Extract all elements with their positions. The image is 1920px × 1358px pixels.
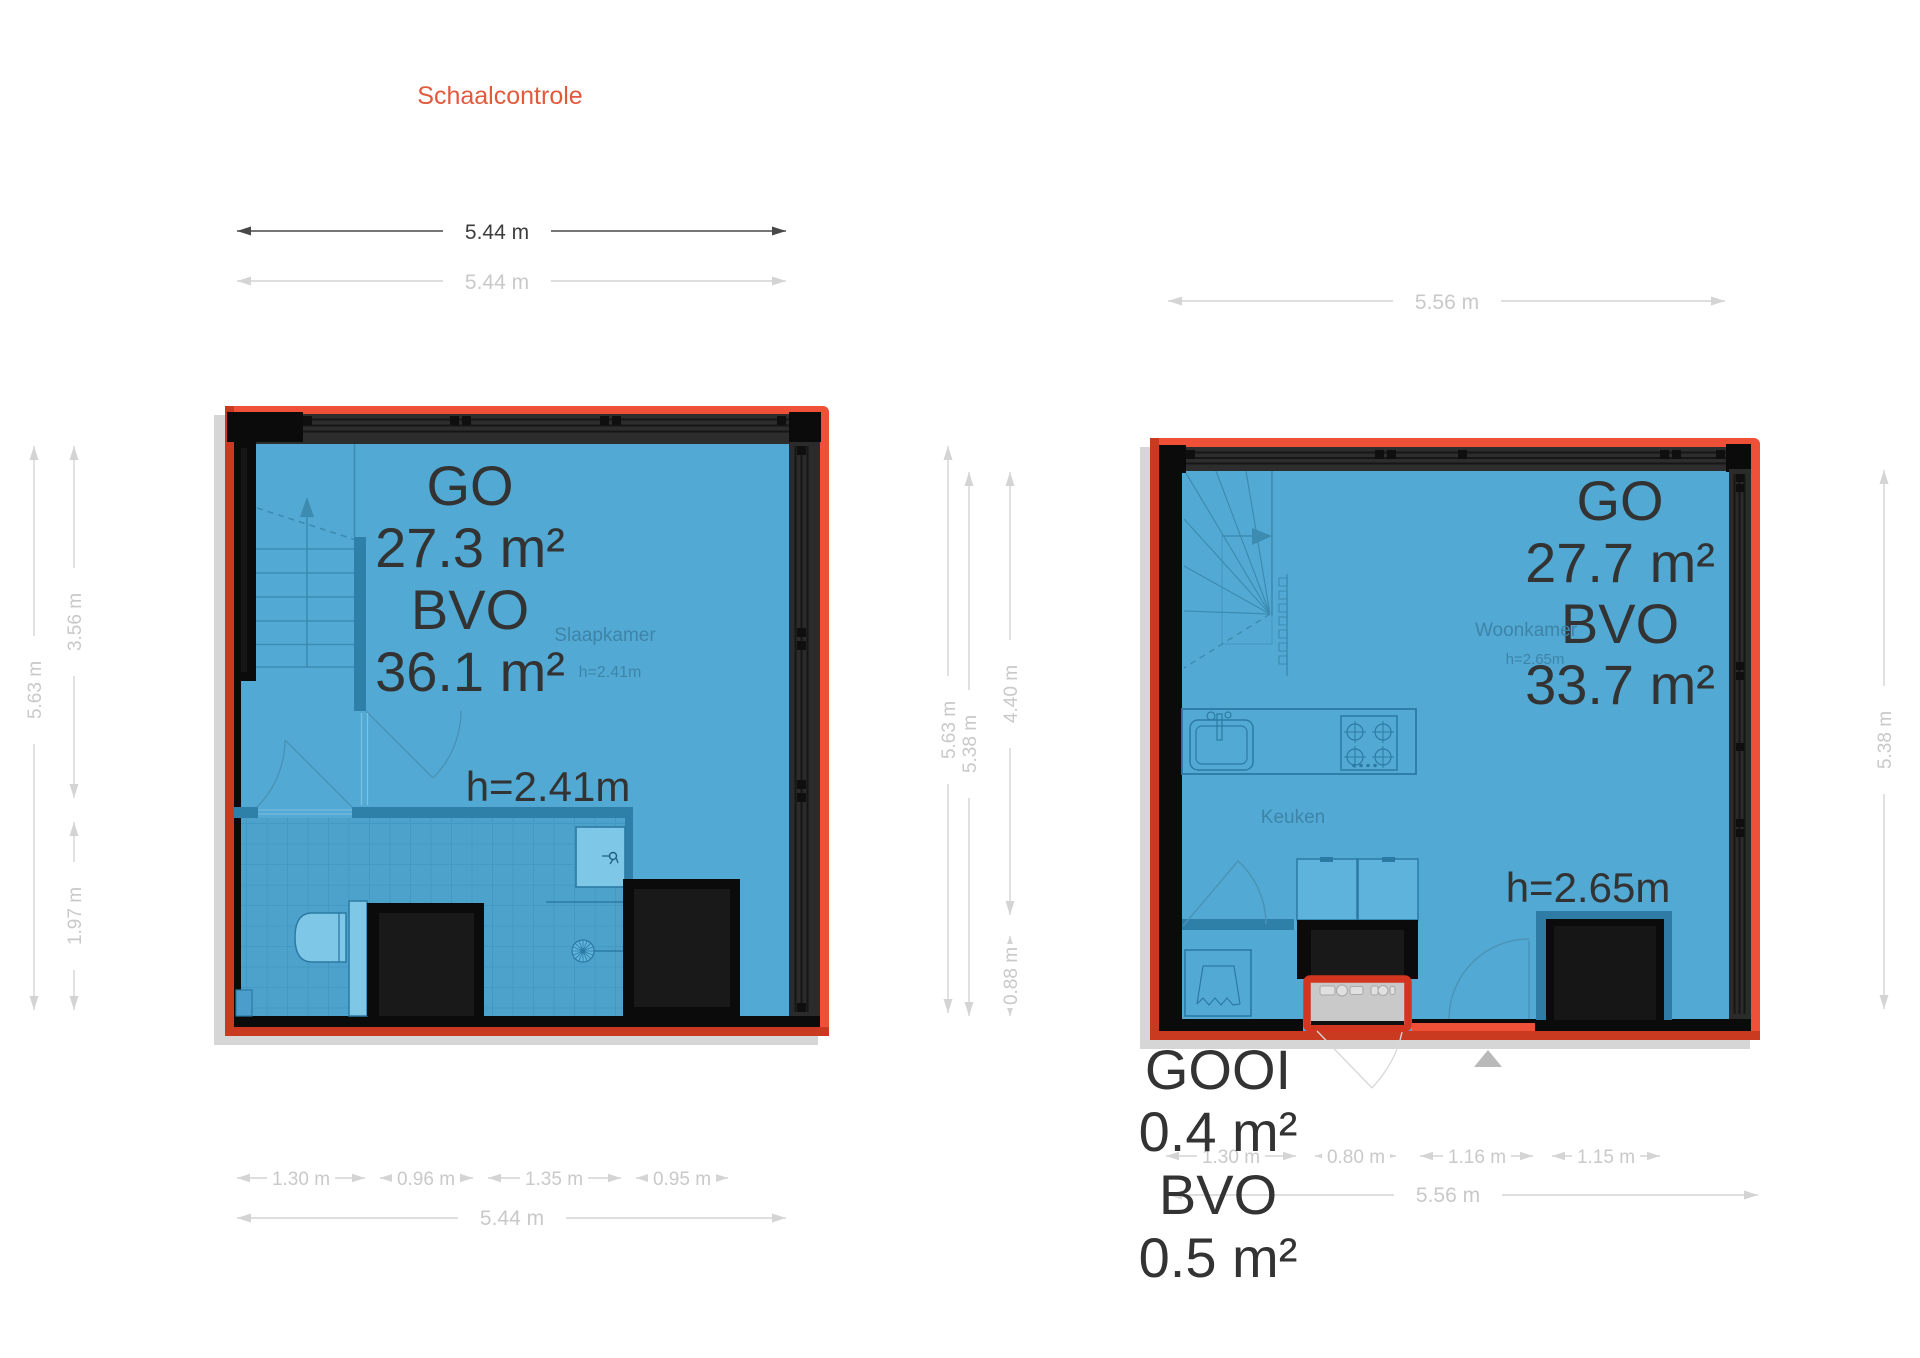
svg-text:GO: GO (426, 454, 513, 517)
svg-text:GO: GO (1576, 469, 1663, 532)
svg-text:5.63 m: 5.63 m (25, 661, 46, 719)
svg-text:Woonkamer: Woonkamer (1475, 620, 1578, 641)
svg-text:5.44 m: 5.44 m (465, 221, 529, 244)
svg-text:1.30 m: 1.30 m (272, 1169, 330, 1190)
svg-text:Slaapkamer: Slaapkamer (554, 625, 656, 646)
svg-text:0.88 m: 0.88 m (1001, 947, 1022, 1005)
svg-text:27.3 m²: 27.3 m² (375, 516, 565, 579)
svg-text:1.15 m: 1.15 m (1577, 1147, 1635, 1168)
svg-text:0.95 m: 0.95 m (653, 1169, 711, 1190)
svg-text:0.80 m: 0.80 m (1327, 1147, 1385, 1168)
svg-text:1.16 m: 1.16 m (1448, 1147, 1506, 1168)
svg-text:BVO: BVO (411, 578, 529, 641)
svg-text:0.4 m²: 0.4 m² (1139, 1100, 1298, 1163)
svg-text:36.1 m²: 36.1 m² (375, 640, 565, 703)
svg-text:Keuken: Keuken (1261, 807, 1325, 828)
svg-text:5.44 m: 5.44 m (465, 271, 529, 294)
svg-text:3.56 m: 3.56 m (65, 593, 86, 651)
svg-text:GOOI: GOOI (1145, 1038, 1291, 1101)
svg-text:5.56 m: 5.56 m (1416, 1184, 1480, 1207)
svg-text:BVO: BVO (1159, 1163, 1277, 1226)
svg-text:h=2.65m: h=2.65m (1506, 864, 1671, 911)
svg-text:5.56 m: 5.56 m (1415, 291, 1479, 314)
svg-text:5.38 m: 5.38 m (1875, 711, 1896, 769)
svg-text:BVO: BVO (1561, 592, 1679, 655)
svg-text:1.97 m: 1.97 m (65, 887, 86, 945)
svg-text:h=2.65m: h=2.65m (1506, 651, 1565, 668)
svg-text:4.40 m: 4.40 m (1001, 665, 1022, 723)
svg-text:27.7 m²: 27.7 m² (1525, 531, 1715, 594)
svg-text:5.44 m: 5.44 m (480, 1207, 544, 1230)
svg-text:h=2.41m: h=2.41m (579, 664, 642, 681)
svg-text:1.35 m: 1.35 m (525, 1169, 583, 1190)
svg-text:h=2.41m: h=2.41m (466, 763, 631, 810)
svg-text:0.5 m²: 0.5 m² (1139, 1226, 1298, 1289)
svg-text:5.38 m: 5.38 m (960, 715, 981, 773)
svg-text:0.96 m: 0.96 m (397, 1169, 455, 1190)
svg-text:Schaalcontrole: Schaalcontrole (417, 82, 582, 110)
